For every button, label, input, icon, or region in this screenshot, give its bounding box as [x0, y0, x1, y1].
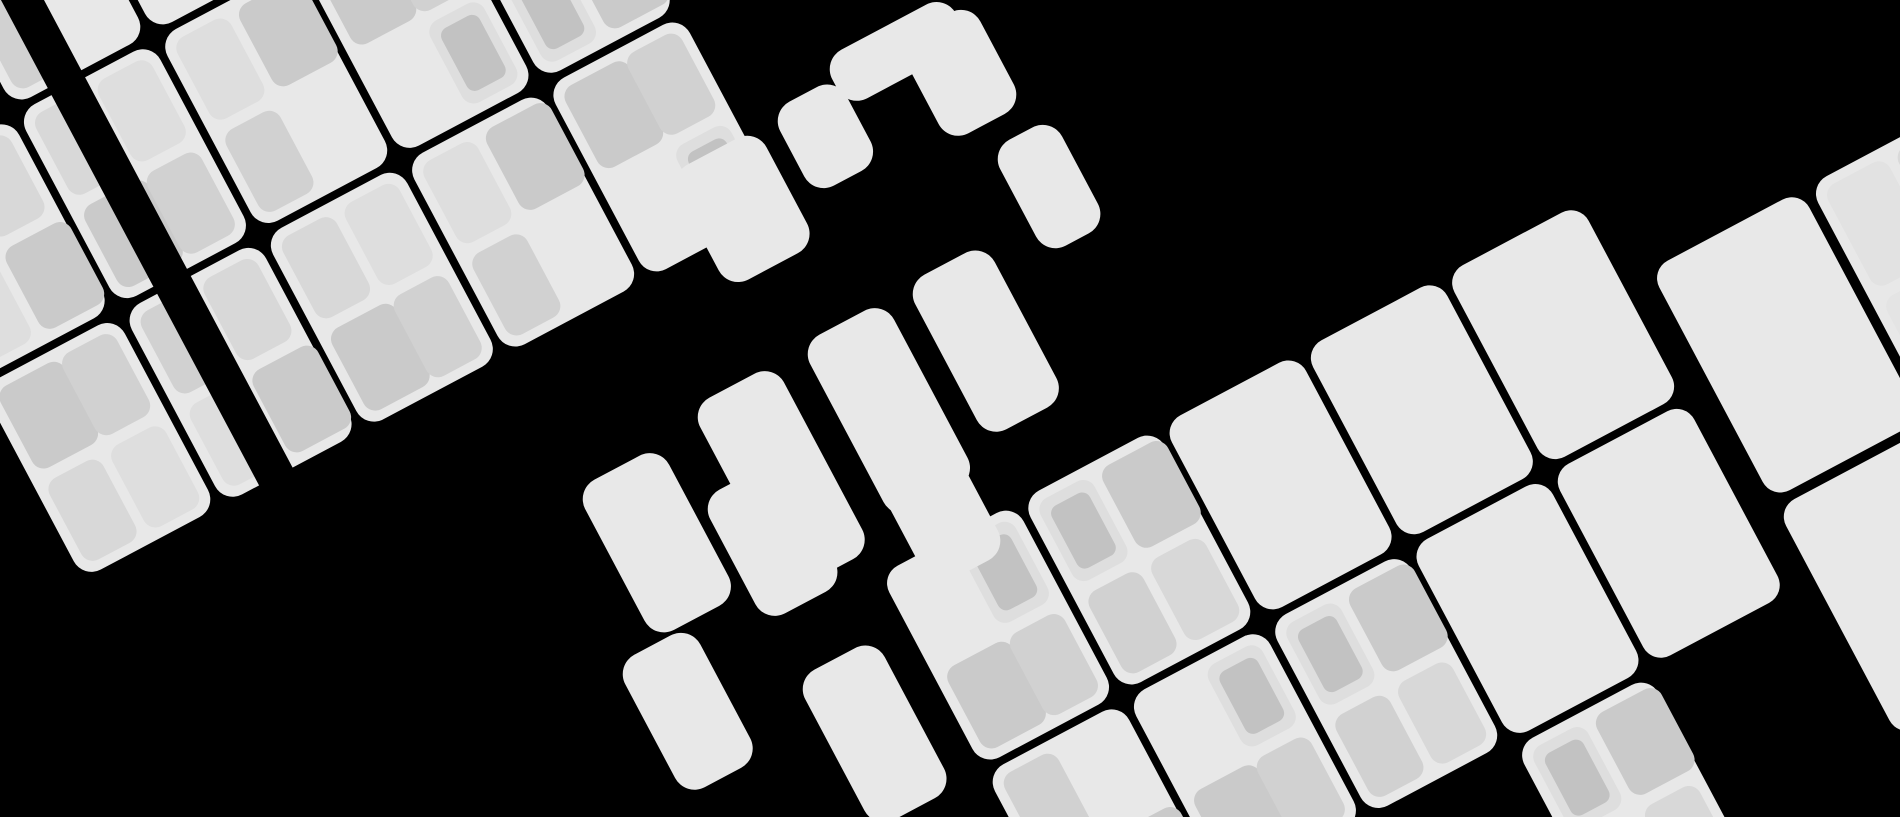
city-map-svg	[0, 0, 1900, 817]
map-viewport	[0, 0, 1900, 817]
